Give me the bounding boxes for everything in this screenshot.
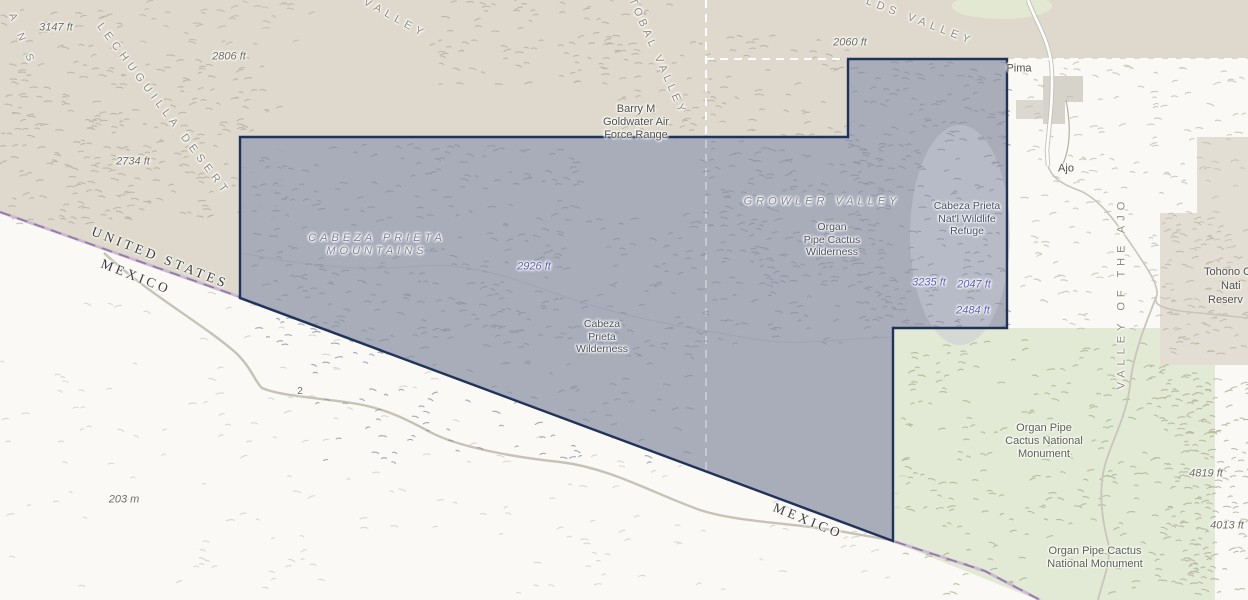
map-svg xyxy=(0,0,1248,600)
ajo-townsite-west xyxy=(1016,100,1043,119)
topo-map-canvas[interactable]: A N S LECHUGUILLA DESERT VALLEY TOBAL VA… xyxy=(0,0,1248,600)
valley-wash-highlight xyxy=(910,125,1010,345)
